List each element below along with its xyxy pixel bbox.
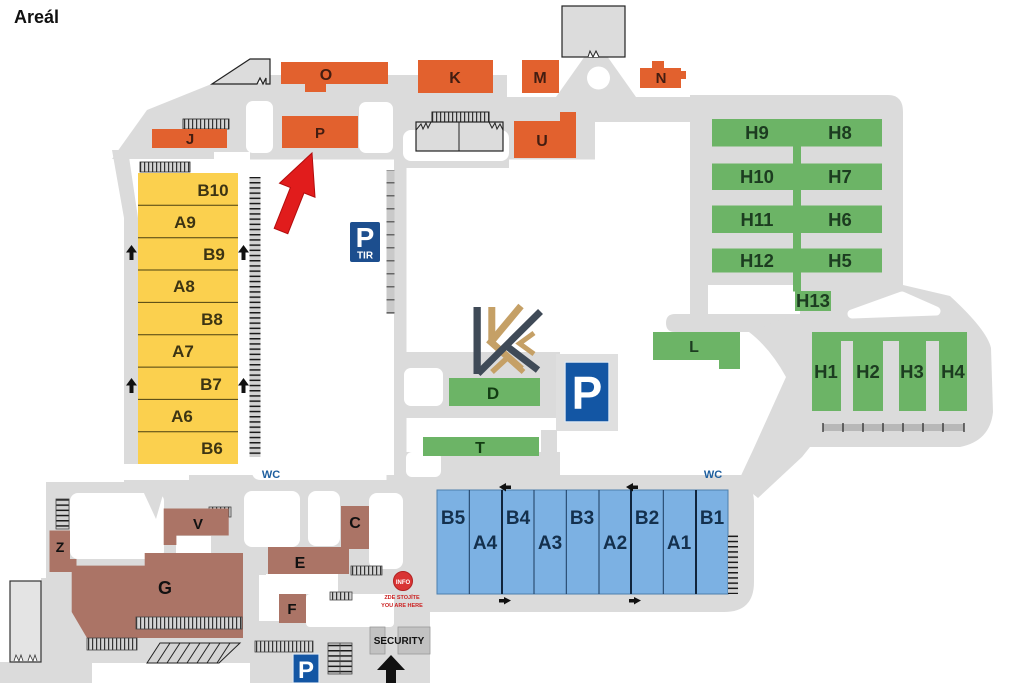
svg-text:H4: H4 <box>941 361 965 382</box>
svg-text:A3: A3 <box>538 533 562 554</box>
svg-text:G: G <box>158 578 172 598</box>
svg-text:A8: A8 <box>173 277 195 296</box>
svg-text:A2: A2 <box>603 533 627 554</box>
svg-text:N: N <box>656 70 667 87</box>
svg-text:D: D <box>487 384 499 403</box>
svg-text:A9: A9 <box>174 213 196 232</box>
svg-text:A4: A4 <box>473 533 498 554</box>
svg-text:C: C <box>349 515 361 532</box>
svg-text:P: P <box>356 222 375 253</box>
svg-text:H3: H3 <box>900 361 924 382</box>
svg-text:F: F <box>287 601 296 618</box>
svg-text:A6: A6 <box>171 407 193 426</box>
svg-text:H7: H7 <box>828 166 852 187</box>
svg-text:O: O <box>320 67 332 84</box>
svg-text:WC: WC <box>262 469 280 481</box>
svg-text:V: V <box>193 516 203 533</box>
svg-text:B2: B2 <box>635 508 659 529</box>
svg-text:P: P <box>572 367 603 419</box>
svg-text:B9: B9 <box>203 245 225 264</box>
svg-text:H9: H9 <box>745 122 769 143</box>
svg-text:B7: B7 <box>200 375 222 394</box>
svg-text:E: E <box>295 555 306 572</box>
svg-text:H5: H5 <box>828 250 852 271</box>
svg-text:TIR: TIR <box>357 251 374 262</box>
svg-text:INFO: INFO <box>396 580 411 586</box>
svg-text:ZDE STOJÍTE: ZDE STOJÍTE <box>384 593 420 601</box>
svg-text:H13: H13 <box>796 290 830 311</box>
svg-text:U: U <box>536 133 548 150</box>
svg-text:J: J <box>186 131 194 148</box>
svg-text:K: K <box>449 70 461 87</box>
svg-text:H11: H11 <box>741 209 774 230</box>
svg-text:P: P <box>315 125 325 142</box>
svg-text:Areál: Areál <box>14 7 59 27</box>
svg-text:SECURITY: SECURITY <box>374 636 425 647</box>
svg-text:B1: B1 <box>700 508 725 529</box>
svg-text:B5: B5 <box>441 508 466 529</box>
svg-text:B4: B4 <box>506 508 531 529</box>
svg-text:H1: H1 <box>814 361 838 382</box>
svg-text:P: P <box>298 657 314 683</box>
svg-text:B3: B3 <box>570 508 594 529</box>
svg-text:H8: H8 <box>828 122 852 143</box>
svg-text:M: M <box>533 70 546 87</box>
svg-text:YOU ARE HERE: YOU ARE HERE <box>381 603 423 609</box>
svg-text:H2: H2 <box>856 361 880 382</box>
svg-text:H12: H12 <box>740 250 774 271</box>
svg-text:T: T <box>475 440 485 457</box>
svg-text:B10: B10 <box>197 181 228 200</box>
svg-text:B8: B8 <box>201 310 223 329</box>
svg-text:A7: A7 <box>172 342 194 361</box>
svg-text:H6: H6 <box>828 209 852 230</box>
svg-text:Z: Z <box>56 539 65 555</box>
svg-text:B6: B6 <box>201 439 223 458</box>
svg-text:H10: H10 <box>740 166 774 187</box>
svg-text:L: L <box>689 339 699 356</box>
svg-text:WC: WC <box>704 469 722 481</box>
svg-text:A1: A1 <box>667 533 692 554</box>
